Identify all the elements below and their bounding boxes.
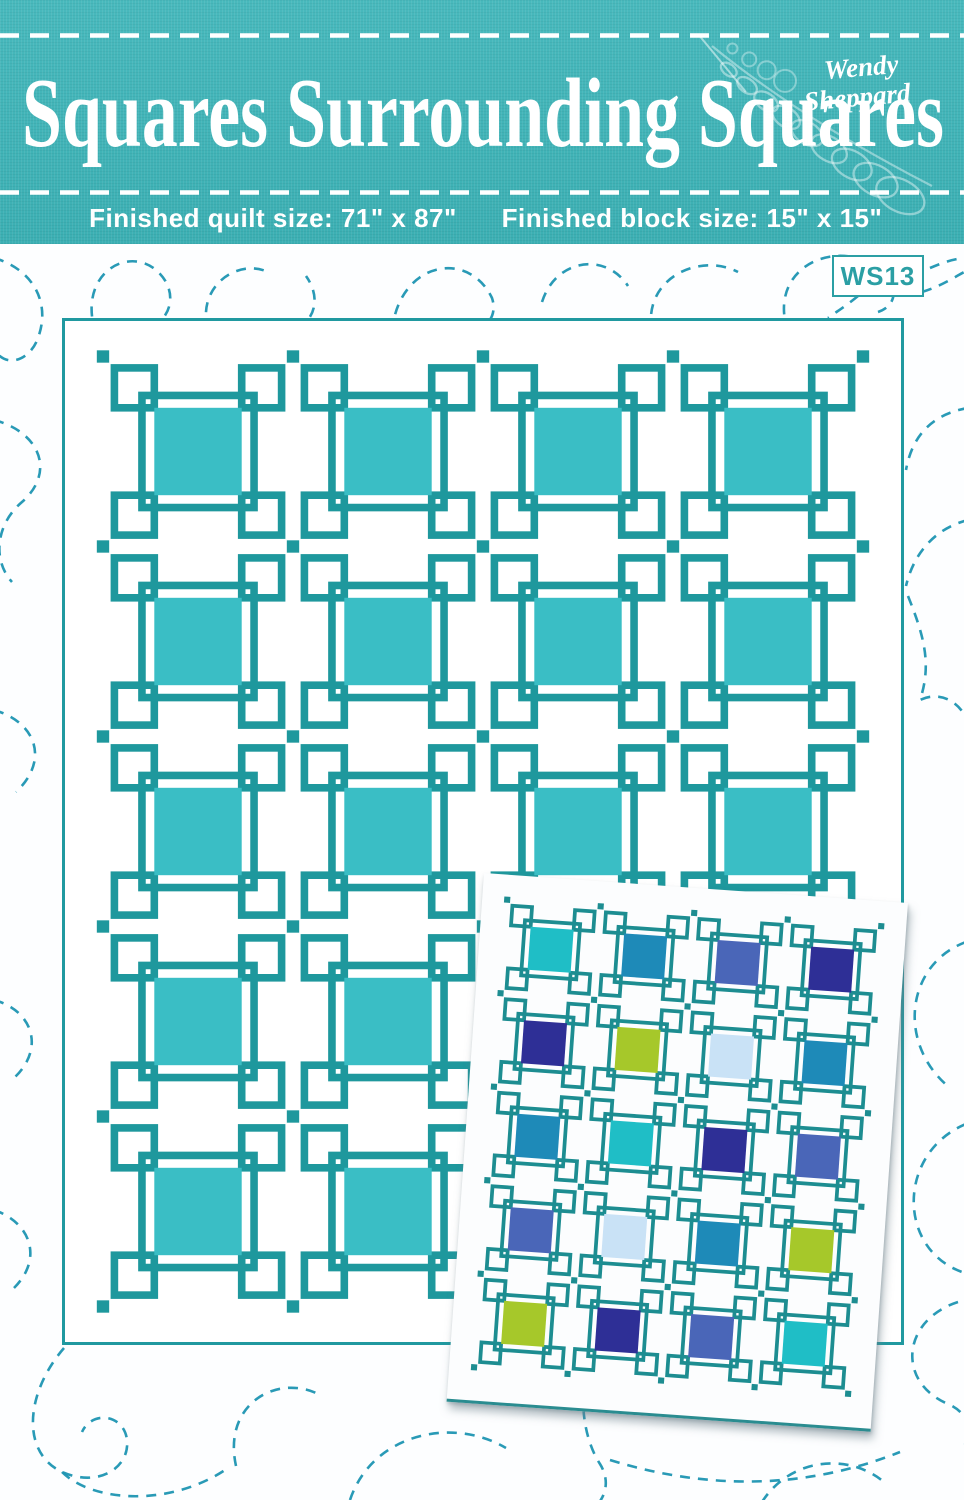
pattern-cover-page: { "header": { "title": "Squares Surround… <box>0 0 964 1500</box>
inset-quilt-photo <box>447 873 908 1432</box>
page-title: Squares Surrounding Squares <box>22 59 944 168</box>
finished-quilt-size-label: Finished quilt size: 71" x 87" <box>89 203 457 233</box>
pattern-code-label: WS13 <box>841 261 916 292</box>
pattern-code-badge: WS13 <box>832 255 924 297</box>
finished-block-size-label: Finished block size: 15" x 15" <box>502 203 883 233</box>
header-band: Wendy Sheppard Squares Surrounding Squar… <box>0 0 964 244</box>
inset-quilt-diagram <box>447 873 908 1429</box>
